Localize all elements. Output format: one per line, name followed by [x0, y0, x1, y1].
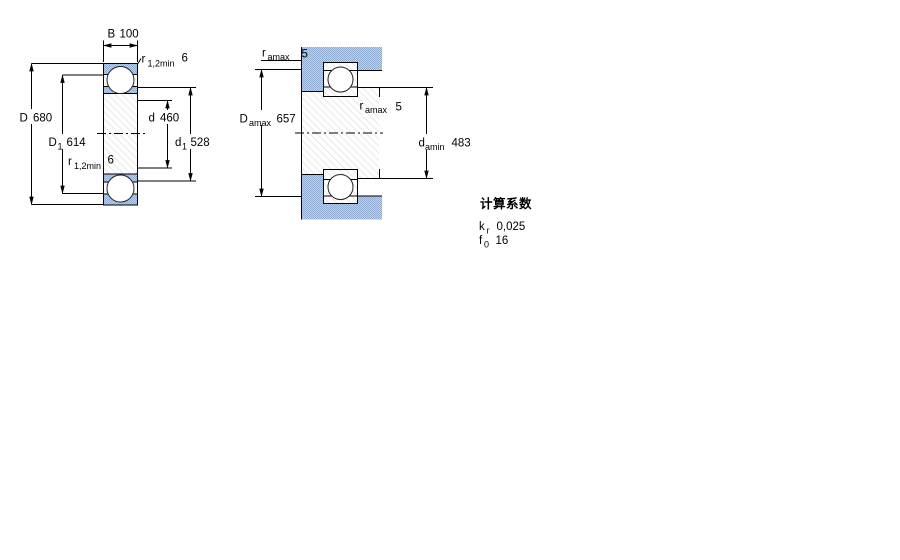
label-D1-sub: 1: [58, 142, 63, 152]
label-ramax-mid-symbol: r: [360, 101, 364, 113]
ball-bottom: [107, 175, 134, 202]
label-d1-symbol: d: [175, 137, 181, 149]
dimension-Damax: [255, 70, 301, 197]
factor-kr-symbol: k: [479, 221, 485, 233]
label-d-symbol: d: [149, 113, 155, 125]
label-Damax-value: 657: [277, 114, 296, 126]
label-D1-symbol: D: [49, 137, 57, 149]
factor-f0-sub: 0: [484, 240, 489, 250]
calculation-factors-block: 计算系数 k r 0,025 f 0 16: [479, 196, 532, 250]
label-r-top-sub: 1,2min: [148, 59, 175, 69]
label-d1-value: 528: [191, 137, 210, 149]
label-d-value: 460: [160, 113, 179, 125]
factor-kr-sub: r: [487, 226, 490, 236]
label-r-left-symbol: r: [68, 156, 72, 168]
label-D-value: 680: [33, 113, 52, 125]
housing-bore-top-right: [358, 47, 382, 71]
dimension-d: [138, 101, 172, 169]
label-damin-sub: amin: [425, 142, 445, 152]
label-r-top-symbol: r: [142, 54, 146, 66]
ball-top-right-diagram: [328, 67, 353, 92]
calculation-factors-heading: 计算系数: [480, 196, 532, 211]
factor-kr-value: 0,025: [497, 221, 526, 233]
label-D1-value: 614: [67, 137, 87, 149]
bearing-mounting-diagram: r amax 5 D amax 657 r amax 5 d amin 483: [240, 47, 471, 220]
label-ramax-mid-value: 5: [396, 102, 402, 114]
factor-f0-symbol: f: [479, 235, 483, 247]
mounted-bearing-top: [324, 63, 358, 97]
dimension-B: [104, 41, 138, 63]
label-damin-symbol: d: [419, 138, 425, 150]
mounted-bearing-bottom: [324, 170, 358, 204]
label-d1-sub: 1: [182, 142, 187, 152]
ball-top: [107, 67, 134, 94]
label-ramax-top-sub: amax: [268, 52, 291, 62]
label-B-value: 100: [120, 29, 139, 41]
bearing-drawing-canvas: B 100 r 1,2min 6 D 680 D 1 614 r 1,2min …: [0, 0, 900, 560]
bearing-dimension-drawing-page: B 100 r 1,2min 6 D 680 D 1 614 r 1,2min …: [0, 0, 900, 560]
dimension-D: [32, 64, 104, 205]
housing-bore-bottom-right: [358, 196, 382, 220]
housing-shoulder-bottom: [301, 175, 323, 220]
label-Damax-sub: amax: [249, 118, 272, 128]
label-B-symbol: B: [108, 29, 116, 41]
bearing-cross-section-diagram: B 100 r 1,2min 6 D 680 D 1 614 r 1,2min …: [20, 29, 210, 206]
factor-f0-value: 16: [496, 235, 509, 247]
label-ramax-top-value: 5: [302, 49, 308, 61]
dimension-D1: [63, 75, 104, 194]
label-r-left-sub: 1,2min: [74, 161, 101, 171]
label-Damax-symbol: D: [240, 114, 248, 126]
label-r-left-value: 6: [108, 155, 114, 167]
label-ramax-top-symbol: r: [262, 48, 266, 60]
label-ramax-mid-sub: amax: [365, 105, 388, 115]
ball-bottom-right-diagram: [328, 175, 353, 200]
label-damin-value: 483: [452, 138, 471, 150]
label-r-top-value: 6: [182, 53, 188, 65]
label-D-symbol: D: [20, 113, 28, 125]
